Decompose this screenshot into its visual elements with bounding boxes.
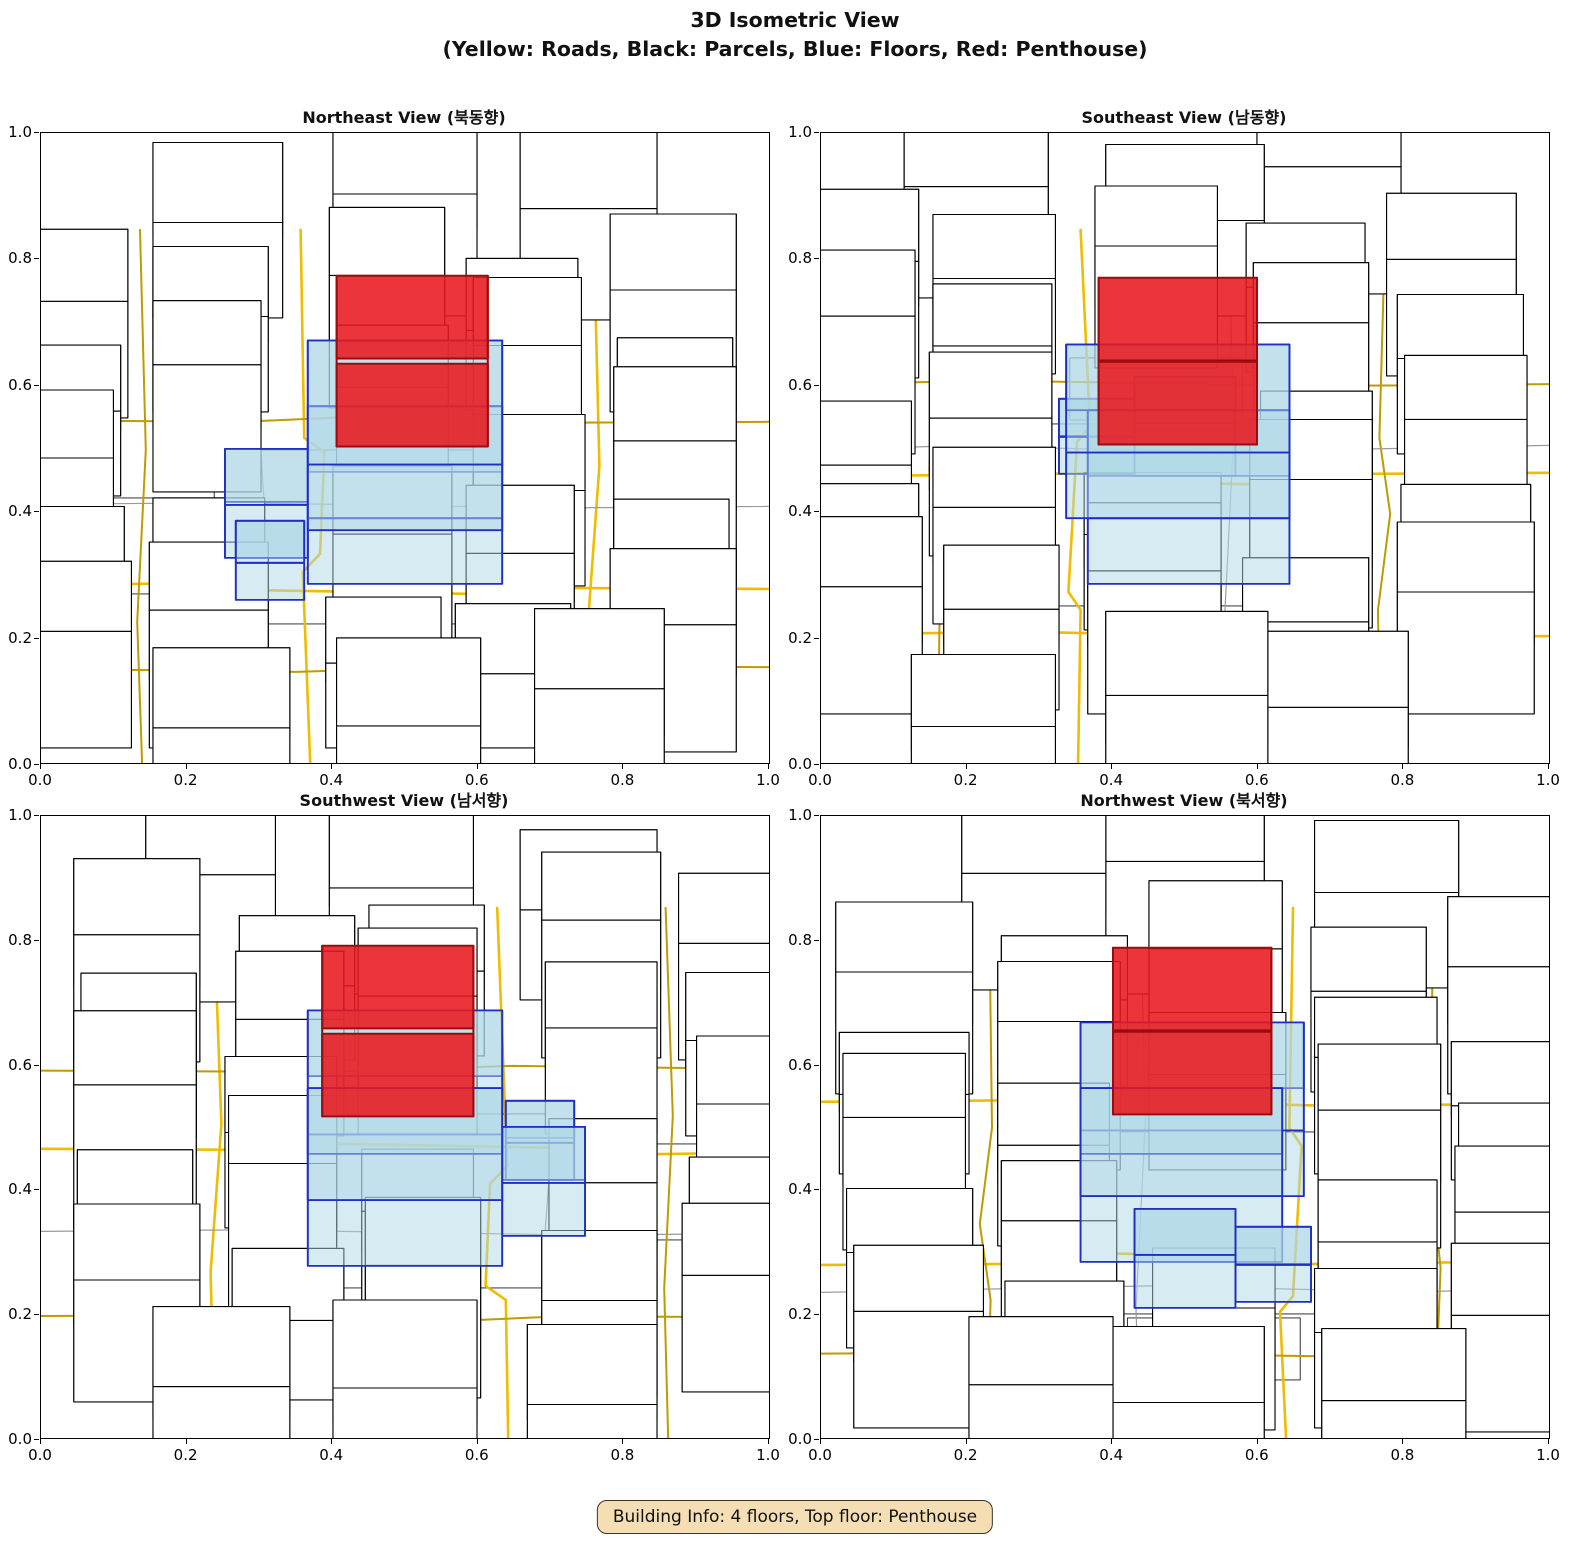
y-tick-mark <box>814 1314 819 1315</box>
y-tick-mark <box>814 511 819 512</box>
x-tick-label: 0.6 <box>1245 1446 1269 1464</box>
axes-frame-southwest <box>40 815 770 1439</box>
y-tick-label: 0.8 <box>788 931 812 949</box>
isometric-scene-southwest <box>41 816 769 1438</box>
y-tick-label: 0.6 <box>788 376 812 394</box>
figure-title: 3D Isometric View (Yellow: Roads, Black:… <box>0 6 1590 63</box>
x-tick-mark <box>768 1439 769 1444</box>
isometric-scene-northeast <box>41 133 769 763</box>
y-tick-mark <box>34 511 39 512</box>
y-tick-label: 0.8 <box>8 931 32 949</box>
figure-title-line2: (Yellow: Roads, Black: Parcels, Blue: Fl… <box>0 35 1590 64</box>
x-tick-label: 0.8 <box>610 1446 634 1464</box>
x-tick-mark <box>1548 764 1549 769</box>
x-tick-mark <box>186 764 187 769</box>
y-tick-label: 0.0 <box>8 755 32 773</box>
axes-frame-northwest <box>820 815 1550 1439</box>
y-tick-mark <box>34 258 39 259</box>
y-tick-label: 0.0 <box>788 755 812 773</box>
x-tick-mark <box>820 1439 821 1444</box>
y-tick-mark <box>814 764 819 765</box>
y-tick-mark <box>814 940 819 941</box>
x-tick-mark <box>1548 1439 1549 1444</box>
y-tick-mark <box>34 385 39 386</box>
x-tick-mark <box>1257 764 1258 769</box>
x-tick-mark <box>768 764 769 769</box>
y-tick-mark <box>814 258 819 259</box>
x-tick-mark <box>622 764 623 769</box>
y-tick-label: 1.0 <box>8 806 32 824</box>
y-tick-label: 1.0 <box>788 806 812 824</box>
y-tick-label: 0.8 <box>8 249 32 267</box>
subplot-northwest: Northwest View (북서향) 0.00.20.40.60.81.01… <box>780 787 1575 1477</box>
subplot-title-northeast: Northeast View (북동향) <box>40 104 768 128</box>
y-tick-label: 0.6 <box>8 1056 32 1074</box>
y-tick-label: 0.8 <box>788 249 812 267</box>
x-tick-label: 0.0 <box>808 1446 832 1464</box>
isometric-scene-southeast <box>821 133 1549 763</box>
subplot-title-southeast: Southeast View (남동향) <box>820 104 1548 128</box>
y-tick-mark <box>34 815 39 816</box>
x-tick-mark <box>1402 1439 1403 1444</box>
y-tick-label: 0.0 <box>788 1430 812 1448</box>
y-tick-mark <box>34 132 39 133</box>
x-tick-label: 0.4 <box>319 1446 343 1464</box>
x-tick-mark <box>1111 1439 1112 1444</box>
subplot-southwest: Southwest View (남서향) 0.00.20.40.60.81.01… <box>0 787 795 1477</box>
x-tick-label: 0.0 <box>28 1446 52 1464</box>
subplot-title-northwest: Northwest View (북서향) <box>820 787 1548 811</box>
y-tick-label: 0.4 <box>8 1180 32 1198</box>
y-tick-label: 0.4 <box>788 1180 812 1198</box>
y-tick-mark <box>34 1065 39 1066</box>
y-tick-mark <box>814 132 819 133</box>
x-tick-label: 0.8 <box>1390 1446 1414 1464</box>
x-tick-mark <box>1402 764 1403 769</box>
x-tick-mark <box>331 764 332 769</box>
y-tick-label: 0.6 <box>8 376 32 394</box>
y-tick-label: 0.6 <box>788 1056 812 1074</box>
y-tick-mark <box>814 1189 819 1190</box>
x-tick-label: 0.6 <box>465 1446 489 1464</box>
y-tick-mark <box>814 385 819 386</box>
isometric-scene-northwest <box>821 816 1549 1438</box>
x-tick-label: 0.2 <box>954 1446 978 1464</box>
subplot-northeast: Northeast View (북동향) 0.00.20.40.60.81.01… <box>0 104 795 794</box>
y-tick-label: 0.2 <box>8 1305 32 1323</box>
subplot-southeast: Southeast View (남동향) 0.00.20.40.60.81.01… <box>780 104 1575 794</box>
y-tick-label: 0.0 <box>8 1430 32 1448</box>
x-tick-label: 0.2 <box>174 1446 198 1464</box>
axes-frame-southeast <box>820 132 1550 764</box>
x-tick-mark <box>1111 764 1112 769</box>
y-tick-label: 1.0 <box>788 123 812 141</box>
x-tick-label: 1.0 <box>1536 1446 1560 1464</box>
x-tick-label: 1.0 <box>756 1446 780 1464</box>
y-tick-mark <box>34 1439 39 1440</box>
building-info-badge: Building Info: 4 floors, Top floor: Pent… <box>597 1500 993 1534</box>
y-tick-label: 0.2 <box>788 1305 812 1323</box>
y-tick-label: 0.4 <box>788 502 812 520</box>
y-tick-mark <box>814 815 819 816</box>
axes-frame-northeast <box>40 132 770 764</box>
x-tick-mark <box>622 1439 623 1444</box>
y-tick-mark <box>34 1189 39 1190</box>
x-tick-mark <box>477 1439 478 1444</box>
y-tick-mark <box>814 638 819 639</box>
y-tick-label: 0.4 <box>8 502 32 520</box>
x-tick-mark <box>1257 1439 1258 1444</box>
x-tick-mark <box>331 1439 332 1444</box>
y-tick-mark <box>34 940 39 941</box>
x-tick-mark <box>477 764 478 769</box>
subplot-title-southwest: Southwest View (남서향) <box>40 787 768 811</box>
x-tick-mark <box>820 764 821 769</box>
y-tick-mark <box>34 764 39 765</box>
x-tick-mark <box>966 764 967 769</box>
x-tick-label: 0.4 <box>1099 1446 1123 1464</box>
x-tick-mark <box>40 764 41 769</box>
figure-title-line1: 3D Isometric View <box>0 6 1590 35</box>
y-tick-label: 0.2 <box>788 629 812 647</box>
y-tick-mark <box>34 1314 39 1315</box>
y-tick-label: 0.2 <box>8 629 32 647</box>
y-tick-mark <box>814 1439 819 1440</box>
x-tick-mark <box>40 1439 41 1444</box>
x-tick-mark <box>966 1439 967 1444</box>
y-tick-label: 1.0 <box>8 123 32 141</box>
y-tick-mark <box>34 638 39 639</box>
x-tick-mark <box>186 1439 187 1444</box>
y-tick-mark <box>814 1065 819 1066</box>
